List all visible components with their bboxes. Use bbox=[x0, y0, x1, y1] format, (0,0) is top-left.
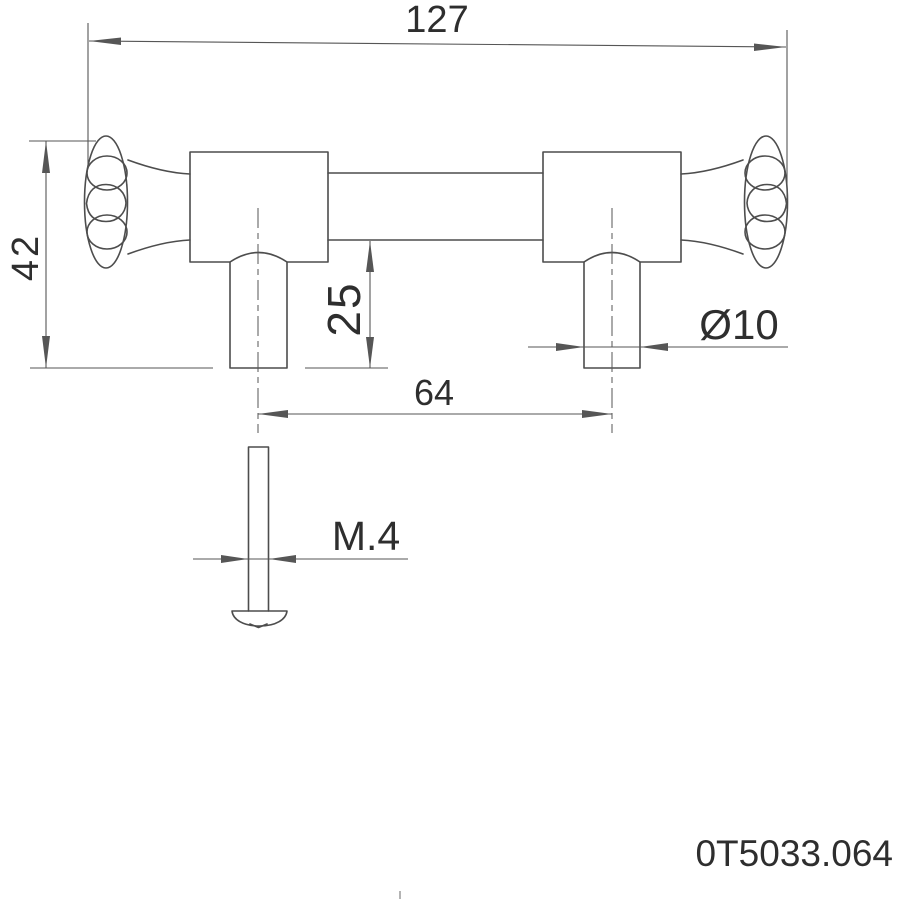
arrowhead-left bbox=[221, 555, 248, 563]
handle-body bbox=[85, 136, 788, 368]
arrowhead-right bbox=[582, 410, 612, 418]
neck-left-top bbox=[128, 160, 190, 174]
dimension-line bbox=[89, 41, 786, 47]
dim-hole-centers: 64 bbox=[258, 372, 612, 418]
arrowhead-right bbox=[640, 343, 668, 351]
screw-shaft bbox=[249, 447, 269, 611]
finial-right-lower-petal bbox=[745, 215, 785, 249]
screw-head bbox=[232, 611, 287, 626]
dim-overall-height: 42 bbox=[5, 141, 96, 368]
neck-right-top bbox=[681, 160, 743, 174]
arrowhead-bottom bbox=[366, 337, 374, 368]
dim-screw-thread: M.4 bbox=[193, 513, 408, 563]
finial-left-lower-petal bbox=[87, 215, 127, 249]
handle-left-block bbox=[190, 152, 328, 262]
dim-overall-height-value: 42 bbox=[5, 233, 47, 281]
dim-post-diameter: Ø10 bbox=[528, 301, 788, 351]
neck-right-bottom bbox=[681, 240, 743, 254]
dim-overall-length: 127 bbox=[88, 0, 787, 200]
arrowhead-bottom bbox=[42, 336, 50, 368]
arrowhead-left bbox=[556, 343, 584, 351]
finial-right bbox=[745, 136, 788, 268]
drawing-canvas: 127 42 25 64 bbox=[0, 0, 900, 900]
dim-post-height-value: 25 bbox=[318, 281, 370, 336]
dim-post-diameter-value: Ø10 bbox=[699, 301, 778, 348]
dim-overall-length-value: 127 bbox=[405, 0, 468, 41]
arrowhead-right bbox=[269, 555, 296, 563]
mounting-screw bbox=[232, 447, 287, 628]
arrowhead-left bbox=[258, 410, 288, 418]
arrowhead-top bbox=[366, 241, 374, 272]
arrowhead-left bbox=[89, 38, 121, 46]
arrowhead-right bbox=[754, 44, 786, 52]
finial-left bbox=[85, 136, 128, 268]
technical-drawing: 127 42 25 64 bbox=[0, 0, 900, 900]
arrowhead-top bbox=[42, 141, 50, 173]
part-number-label: 0T5033.064 bbox=[695, 833, 893, 874]
dim-post-height: 25 bbox=[318, 241, 374, 368]
neck-left-bottom bbox=[128, 240, 190, 254]
dim-screw-thread-value: M.4 bbox=[332, 513, 400, 559]
dim-hole-centers-value: 64 bbox=[414, 372, 454, 413]
